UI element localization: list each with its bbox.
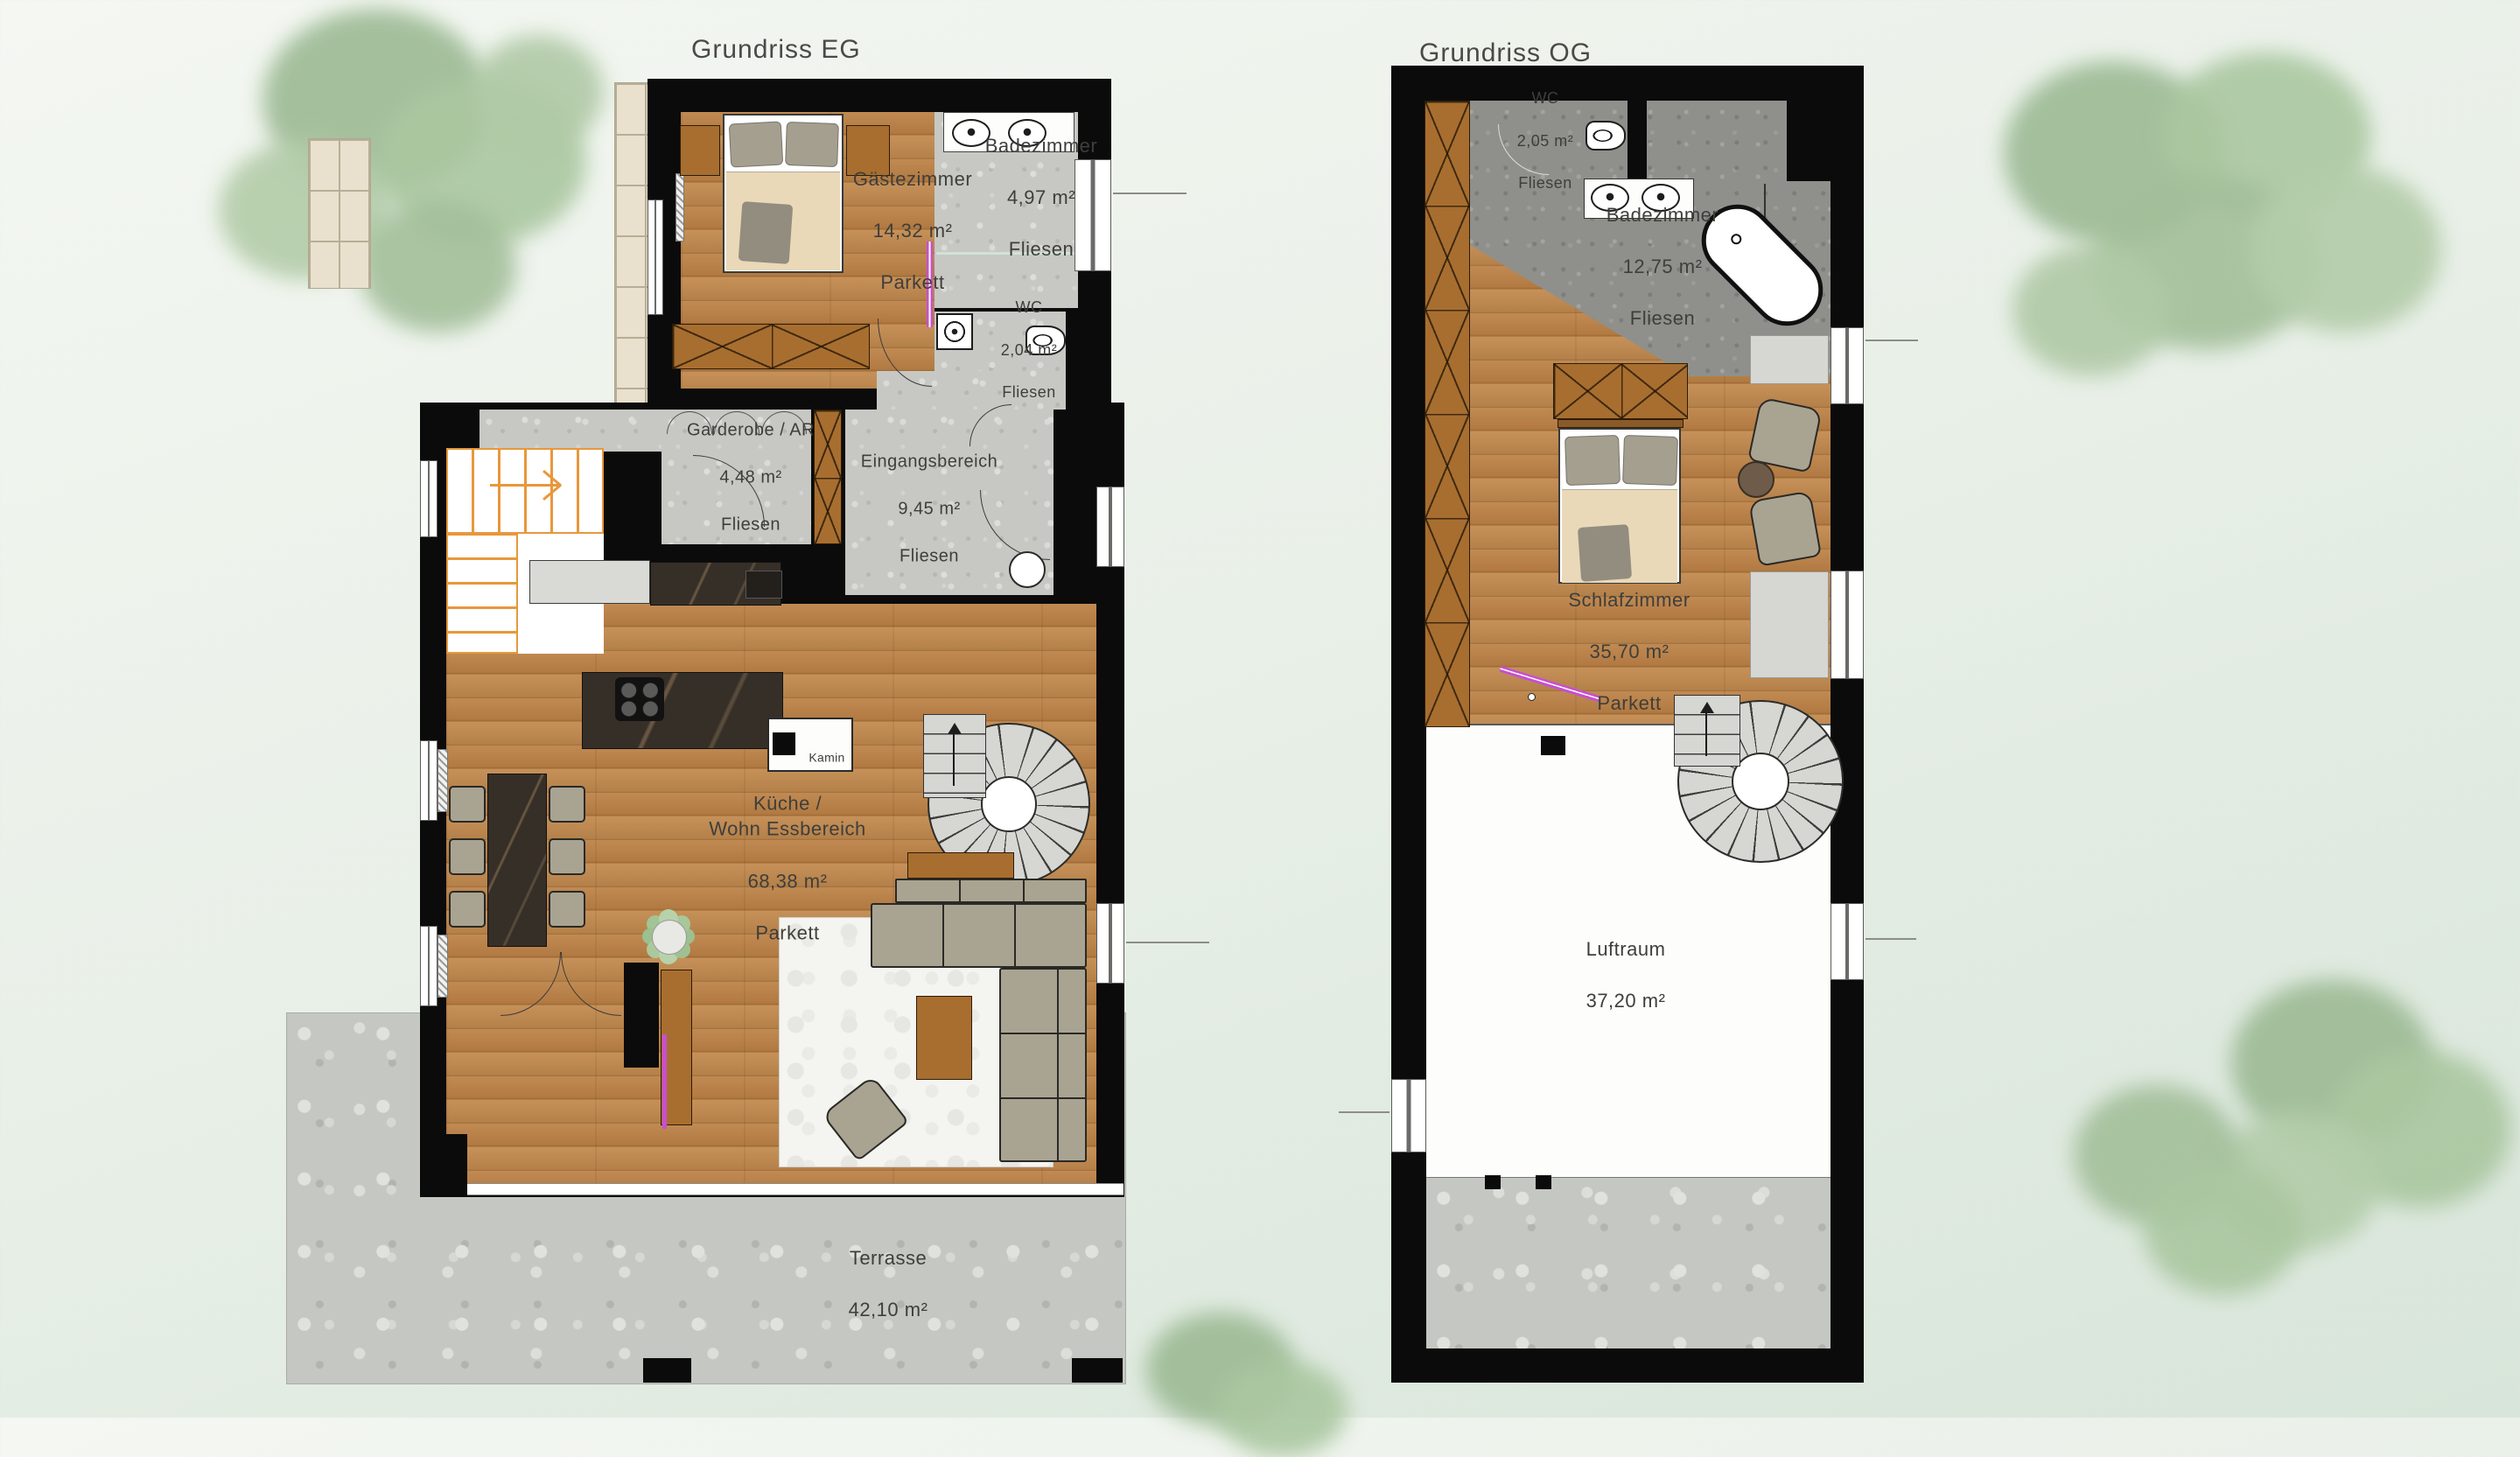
wall-stub [643,1358,691,1383]
stone-path [614,82,649,408]
room-label-wc-eg: WC 2,04 m² Fliesen [1001,276,1058,424]
dimension-line [1865,340,1918,341]
sofa-icon [999,968,1087,1162]
room-label-garderobe: Garderobe / AR 4,48 m² Fliesen [687,396,815,561]
wardrobe-icon [672,324,870,369]
door-pocket [814,410,842,544]
sofa-icon [895,879,1087,903]
radiator-icon [437,749,448,812]
room-label-schlafzimmer: Schlafzimmer 35,70 m² Parkett [1568,561,1690,743]
window-icon [420,926,437,1006]
roof-terrace-floor [1426,1177,1830,1348]
dimension-line [1339,1111,1389,1113]
stairs-icon [446,534,518,654]
stair-direction-arrow [953,732,955,786]
wall-stub [420,1134,467,1197]
window-icon [1830,903,1864,980]
side-table [1738,461,1774,498]
stair-direction-arrow [1705,711,1707,756]
window-bench [1750,571,1829,678]
wardrobe-icon [1424,101,1470,727]
room-label-luftraum: Luftraum 37,20 m² [1586,910,1666,1040]
stairs-icon [446,448,604,534]
dining-chair [549,786,585,823]
radiator-icon [437,935,448,998]
wall-stub [1541,736,1565,755]
toilet-icon [1585,121,1626,151]
dining-chair [449,786,486,823]
armchair-icon [1748,490,1822,566]
dining-chair [449,891,486,928]
wall-stub [624,963,659,1068]
window-icon [1096,903,1124,984]
room-label-kueche: Küche / Wohn Essbereich 68,38 m² Parkett [709,764,866,972]
dining-chair [549,838,585,875]
room-label-badezimmer-eg: Badezimmer 4,97 m² Fliesen [985,107,1097,289]
column [1009,551,1046,588]
window-icon [1391,1079,1426,1152]
room-label-wc-og: WC 2,05 m² Fliesen [1517,67,1574,215]
window-icon [1830,327,1864,404]
glass-front [421,1183,1123,1195]
annotation-marker [1528,693,1536,701]
room-label-gaestezimmer: Gästezimmer 14,32 m² Parkett [853,140,972,322]
dimension-line [1865,938,1916,940]
nightstand [680,125,720,176]
og-title: Grundriss OG [1419,39,1592,68]
window-bench [1750,335,1829,384]
wall-stub [1072,1358,1123,1383]
wall-stub [1485,1175,1501,1189]
window-icon [1830,571,1864,679]
dimension-line [1113,193,1186,194]
entry-door-opening [1096,487,1124,567]
bed-icon [723,114,843,273]
sideboard [907,852,1014,879]
cooktop-icon [615,677,664,721]
wall-stub [1787,101,1830,181]
window-icon [420,460,437,537]
stone-path [308,138,371,289]
radiator-icon [675,173,684,242]
annotation-line [662,1034,667,1129]
kitchen-cabinets [529,560,650,604]
window-icon [420,740,437,821]
kitchen-sink-icon [745,571,782,599]
coffee-table [916,996,972,1080]
room-label-badezimmer-og: Badezimmer 12,75 m² Fliesen [1606,176,1718,358]
room-label-terrasse: Terrasse 42,10 m² [849,1219,928,1348]
hall-floor [479,410,663,452]
wall-stub [1627,99,1647,179]
dining-table-icon [487,774,547,947]
dining-chair [449,838,486,875]
dining-chair [549,891,585,928]
dimension-line [1126,942,1209,943]
window-icon [647,200,663,315]
wall-stub [1536,1175,1551,1189]
room-label-eingangsbereich: Eingangsbereich 9,45 m² Fliesen [861,427,998,592]
headboard-shelf [1557,419,1683,428]
eg-title: Grundriss EG [691,35,861,65]
headboard-cabinet [1553,363,1688,419]
stair-direction-arrow [490,484,558,487]
kitchen-island [582,672,783,749]
sofa-icon [871,903,1087,968]
